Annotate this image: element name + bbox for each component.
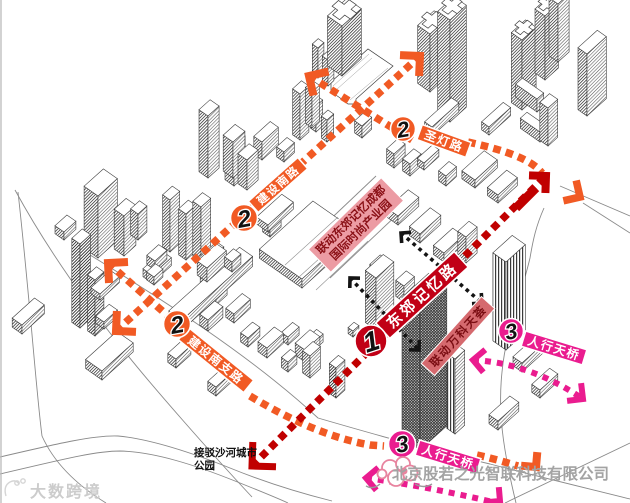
svg-text:北京股若之光智联科技有限公司: 北京股若之光智联科技有限公司 bbox=[392, 464, 609, 483]
svg-text:公园: 公园 bbox=[194, 460, 215, 472]
svg-text:接驳沙河城市: 接驳沙河城市 bbox=[194, 446, 257, 459]
svg-text:大数跨境: 大数跨境 bbox=[30, 482, 102, 501]
